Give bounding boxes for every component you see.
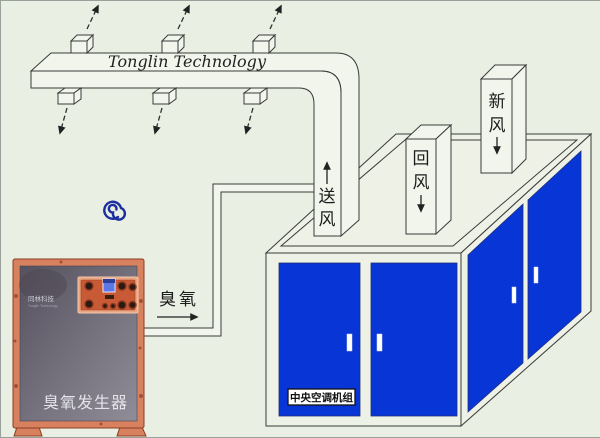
ac-front-door-2 [371,263,457,416]
top-vent-1 [71,35,93,53]
hvac-ozone-diagram: 中央空调机组 回 风 新 风 Tonglin Technology 送 风 [1,1,600,437]
small-knob[interactable] [103,304,108,309]
frame-texture-spot [139,394,143,398]
bottom-vent-1 [58,88,81,104]
ac-front-door-2-handle [377,334,382,351]
frame-texture-spot [14,294,18,298]
bottom-vent-2 [153,88,176,104]
frame-texture-spot [14,384,18,388]
top-vent-2-front [162,41,178,53]
supply-air-char-1: 送 [319,187,336,206]
frame-texture-spot [100,423,103,426]
ozone-generator: 同林科技 Tonglin Technology 臭氧发生器 [13,259,146,436]
frame-texture-spot [14,340,17,343]
top-vent-3-front [253,41,269,53]
fresh-air-duct: 新 风 [481,65,526,173]
return-air-char-2: 风 [413,173,430,192]
duct-brand-text: Tonglin Technology [108,52,267,71]
diagram-canvas: 中央空调机组 回 风 新 风 Tonglin Technology 送 风 [0,0,600,438]
return-duct-side [436,125,451,234]
ozone-label: 臭氧 [159,290,199,309]
bottom-vent-2-front [153,93,169,104]
fresh-air-char-1: 新 [489,92,506,111]
top-vent-3 [253,35,275,53]
bottom-vent-3 [244,88,267,104]
knob[interactable] [129,284,136,291]
fresh-air-char-2: 风 [489,116,506,135]
bottom-vent-1-front [58,93,74,104]
knob[interactable] [118,301,126,309]
control-slot [105,295,114,299]
fresh-duct-side [512,65,526,173]
knob[interactable] [118,282,126,290]
control-panel [78,277,138,313]
ac-front-door-1-handle [347,334,352,351]
top-vent-1-front [71,41,87,53]
knob[interactable] [129,302,136,309]
ac-side-panel-2-handle [534,267,538,283]
return-air-duct: 回 风 [406,125,451,234]
small-knob[interactable] [111,304,116,309]
knob[interactable] [85,282,93,290]
ac-side-panel-1-handle [512,287,516,303]
generator-brand-sub: Tonglin Technology [28,304,58,308]
frame-texture-spot [139,299,143,303]
ac-name-label: 中央空调机组 [290,391,353,404]
display-screen-header [103,279,115,283]
return-air-char-1: 回 [413,149,430,168]
supply-air-char-2: 风 [319,210,336,229]
generator-name-label: 臭氧发生器 [43,394,128,412]
generator-brand: 同林科技 [28,294,55,303]
bottom-vent-3-front [244,93,260,104]
knob[interactable] [85,300,93,308]
top-vent-2 [162,35,184,53]
frame-texture-spot [139,347,142,350]
frame-texture-spot [60,261,63,264]
